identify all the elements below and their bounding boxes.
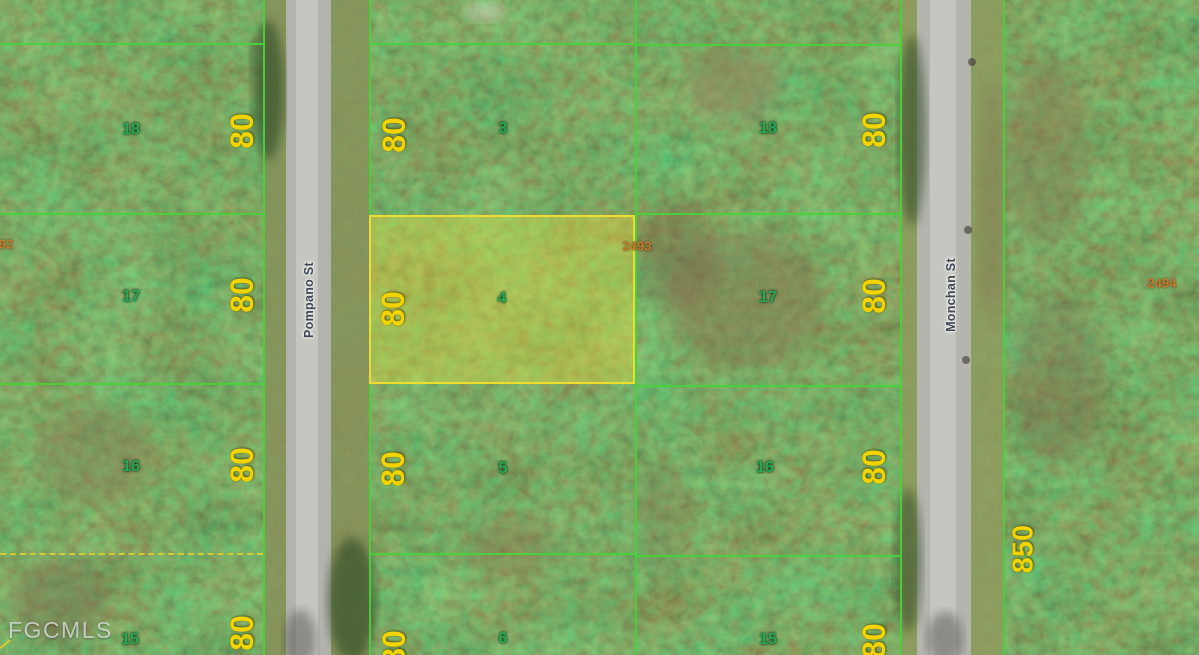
lot-number: 6 <box>499 631 508 647</box>
lot-dimension-label: 80 <box>858 112 890 148</box>
lot-boundary-line <box>900 0 902 655</box>
lot-dimension-label: 80 <box>858 449 890 485</box>
parcel-id-left-edge: 92 <box>0 238 13 251</box>
lot-number: 16 <box>122 459 140 475</box>
lot-dimension-label: 80 <box>377 451 409 487</box>
lot-dimension-label: 80 <box>858 623 890 655</box>
lot-boundary-line-dashed <box>0 553 263 555</box>
lot-dimension-label: 80 <box>226 113 258 149</box>
lot-number: 18 <box>759 121 777 137</box>
lot-dimension-label: 80 <box>226 615 258 651</box>
lot-dimension-label: 80 <box>378 117 410 153</box>
lot-boundary-line <box>1003 0 1005 655</box>
lot-boundary-line <box>263 0 265 655</box>
lot-dimension-label: 80 <box>378 630 410 655</box>
lot-boundary-line <box>635 555 900 557</box>
lot-number: 15 <box>759 632 777 648</box>
street-label-monchan: Monchan St <box>944 258 958 332</box>
lot-number: 16 <box>756 460 774 476</box>
lot-boundary-line <box>635 213 900 215</box>
parcel-id-right-block: 2494 <box>1148 277 1177 290</box>
lot-boundary-line <box>635 385 900 387</box>
lot-number: 5 <box>499 461 508 477</box>
lot-number-subject: 4 <box>498 291 507 307</box>
lot-boundary-line <box>0 213 263 215</box>
lot-boundary-line <box>635 44 900 46</box>
street-label-pompano: Pompano St <box>302 262 316 338</box>
parcel-id-subject-block: 2493 <box>623 240 652 253</box>
lot-number: 18 <box>122 122 140 138</box>
block-depth-label: 850 <box>1010 525 1039 573</box>
lot-dimension-label: 80 <box>377 291 409 327</box>
lot-number: 15 <box>121 632 139 648</box>
lot-number: 17 <box>122 289 140 305</box>
lot-dimension-label: 80 <box>226 277 258 313</box>
mls-watermark: FGCMLS <box>8 617 113 644</box>
lot-boundary-line <box>0 383 263 385</box>
lot-dimension-label: 80 <box>226 447 258 483</box>
lot-number: 3 <box>499 121 508 137</box>
lot-boundary-line <box>369 553 635 555</box>
lot-boundary-line <box>0 43 263 45</box>
lot-boundary-line <box>369 43 635 45</box>
lot-number: 17 <box>759 290 777 306</box>
lot-dimension-label: 80 <box>858 278 890 314</box>
aerial-plat-map: 80 80 80 80 80 80 80 80 80 80 80 80 850 … <box>0 0 1199 655</box>
